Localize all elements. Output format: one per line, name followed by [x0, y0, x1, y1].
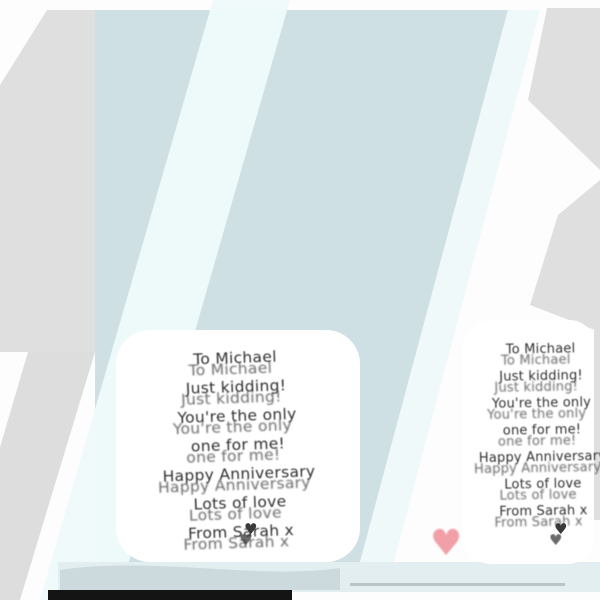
dark-heart-glyph: ♥ [554, 520, 567, 538]
message-line-from: From Sarah x [477, 497, 600, 526]
message-line-anniversary: Happy Anniversary [476, 443, 600, 472]
table-edge-line [350, 583, 565, 586]
product-photo: To Michael Just kidding! You're the only… [0, 0, 600, 600]
message-line-love: Lots of love [477, 470, 600, 499]
card-message-panel: To Michael Just kidding! You're the only… [116, 330, 360, 562]
message-line-to: To Michael [474, 335, 600, 364]
card-message-text: To Michael Just kidding! You're the only… [113, 340, 364, 551]
pink-heart-icon: ♥ [430, 526, 462, 562]
message-line-only: You're the only [475, 389, 600, 418]
dark-heart-icon: ♥ [244, 522, 257, 537]
message-line-one-for-me: one for me! [476, 416, 600, 445]
dark-heart-glyph: ♥ [244, 520, 257, 538]
dark-heart-icon: ♥ [554, 522, 567, 537]
message-line-kidding: Just kidding! [475, 362, 600, 391]
black-bottom-strip [48, 590, 292, 600]
card-message-text-secondary: To Michael Just kidding! You're the only… [474, 335, 600, 526]
card-message-panel-secondary: To Michael Just kidding! You're the only… [462, 320, 594, 564]
